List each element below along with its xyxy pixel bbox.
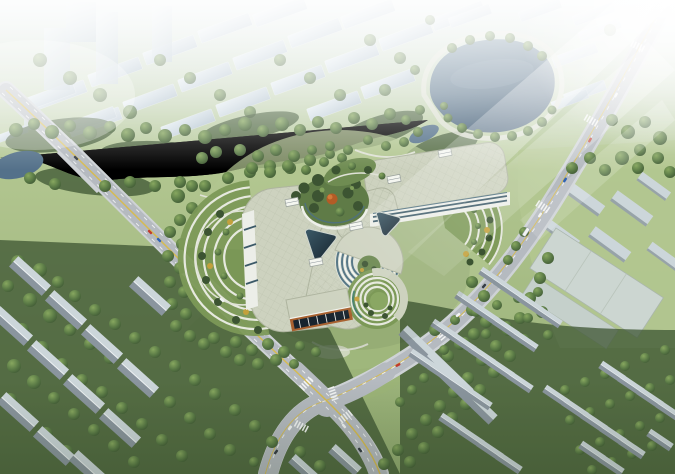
scene-canvas	[0, 0, 675, 474]
aerial-render	[0, 0, 675, 474]
orange-tree	[327, 194, 338, 205]
bottom-vignette	[0, 380, 675, 474]
amphitheater-lawn	[370, 292, 388, 310]
